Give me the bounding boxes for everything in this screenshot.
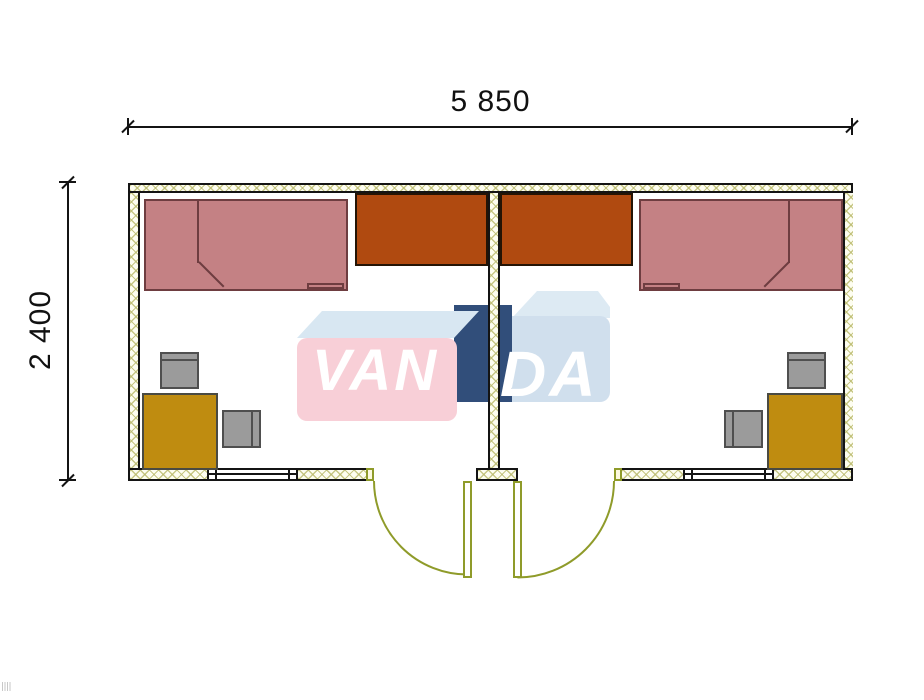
window-glass-line xyxy=(685,473,772,475)
width-dimension-line xyxy=(128,126,853,128)
wall-top xyxy=(130,185,851,193)
door-swing-arc-right xyxy=(518,481,615,578)
door-leaf-right-room xyxy=(513,481,522,578)
window-frame-divider xyxy=(764,470,766,479)
height-dimension-line xyxy=(67,182,69,480)
window-frame-divider xyxy=(215,470,217,479)
wall-left xyxy=(130,193,140,468)
chair-backrest xyxy=(162,359,197,361)
watermark-text-van: VAN xyxy=(312,338,439,403)
wardrobe-right-room xyxy=(500,193,633,266)
bed-right-room xyxy=(639,199,843,291)
door-frame-post-right xyxy=(614,468,622,481)
window-left-room xyxy=(207,468,298,481)
wall-right xyxy=(843,193,853,468)
bed-blanket-fold xyxy=(764,261,790,287)
bed-blanket-fold xyxy=(198,261,224,287)
window-right-room xyxy=(683,468,774,481)
bed-pillow-divider xyxy=(788,201,790,263)
chair-backrest xyxy=(789,359,824,361)
window-frame-divider xyxy=(288,470,290,479)
watermark-text-da: DA xyxy=(500,338,598,410)
desk-left-room xyxy=(142,393,218,470)
door-swing-arc-left xyxy=(374,481,468,575)
desk-right-room xyxy=(767,393,843,470)
bed-foot-detail xyxy=(307,283,344,289)
wardrobe-left-room xyxy=(355,193,488,266)
wall-bottom-segment-2 xyxy=(298,468,366,481)
chair-backrest xyxy=(732,412,734,446)
watermark-blue-topface xyxy=(512,291,610,318)
bed-foot-detail xyxy=(643,283,680,289)
width-dimension-label: 5 850 xyxy=(128,85,853,119)
wall-bottom-segment-3 xyxy=(622,468,683,481)
plot-corner-stamp xyxy=(2,682,11,691)
wall-partition-center xyxy=(488,193,500,468)
door-frame-post-left xyxy=(366,468,374,481)
chair-backrest xyxy=(251,412,253,446)
window-glass-line xyxy=(209,473,296,475)
chair-right-room-upper xyxy=(787,352,826,389)
chair-left-room-upper xyxy=(160,352,199,389)
height-dimension-label: 2 400 xyxy=(24,250,56,410)
bed-pillow-divider xyxy=(197,201,199,263)
chair-left-room-lower xyxy=(222,410,261,448)
bed-left-room xyxy=(144,199,348,291)
window-frame-divider xyxy=(691,470,693,479)
watermark-pink-topface xyxy=(297,311,479,338)
door-leaf-left-room xyxy=(463,481,472,578)
chair-right-room-lower xyxy=(724,410,763,448)
floor-plan: VAN DA 5 850 2 400 xyxy=(0,0,924,700)
door-swing-arcs xyxy=(360,470,630,600)
